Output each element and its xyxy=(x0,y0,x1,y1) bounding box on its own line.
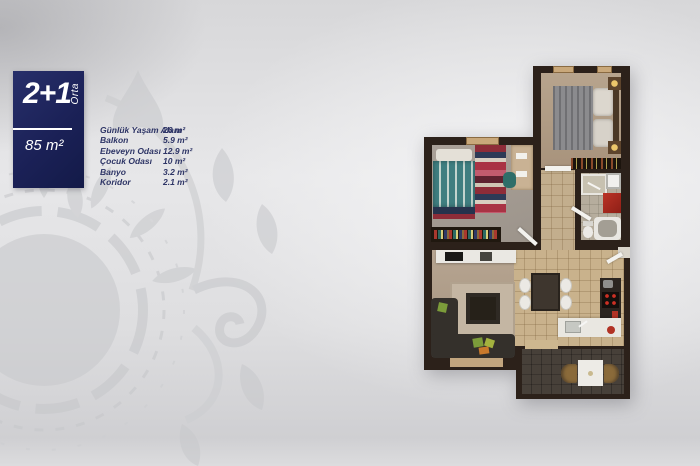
kitchen-counter-top xyxy=(436,250,516,263)
shower-head-arm xyxy=(587,182,600,190)
toilet xyxy=(582,221,594,238)
desk-papers xyxy=(516,153,527,159)
badge-divider xyxy=(13,128,72,130)
floorplan-render xyxy=(423,66,630,403)
room-area: 12.9 m² xyxy=(163,146,192,156)
bathtub xyxy=(594,217,621,240)
bedroom-window xyxy=(597,66,612,73)
child-room-window xyxy=(466,137,499,145)
red-kettle xyxy=(607,326,615,334)
brochure-page: 2+1 Orta 85 m² Günlük Yaşam Alanı 26 m² … xyxy=(0,0,700,466)
room-area-legend: Günlük Yaşam Alanı 26 m² Balkon 5.9 m² E… xyxy=(100,125,230,187)
desk-papers xyxy=(516,171,527,177)
dining-chair xyxy=(560,295,572,310)
dining-chair xyxy=(519,295,531,310)
dining-chair xyxy=(519,278,531,293)
legend-row: Günlük Yaşam Alanı 26 m² xyxy=(100,125,230,135)
legend-row: Koridor 2.1 m² xyxy=(100,177,230,187)
book-spines xyxy=(434,230,498,239)
counter-red-item xyxy=(612,311,618,318)
striped-rug xyxy=(475,145,506,213)
bed-duvet xyxy=(553,86,593,150)
unit-type-label: 2+1 xyxy=(23,77,71,111)
coffee-table-top xyxy=(470,297,496,320)
toilet-bowl xyxy=(583,226,593,238)
shower xyxy=(581,174,607,195)
balcony-door-threshold xyxy=(525,340,558,349)
room-area: 2.1 m² xyxy=(163,177,188,187)
balcony-table xyxy=(578,360,603,386)
room-name: Çocuk Odası xyxy=(100,156,163,166)
room-area: 3.2 m² xyxy=(163,167,188,177)
room-name: Günlük Yaşam Alanı xyxy=(100,125,163,135)
cooktop xyxy=(445,252,463,261)
unit-area-label: 85 m² xyxy=(25,137,63,154)
legend-row: Çocuk Odası 10 m² xyxy=(100,156,230,166)
pot xyxy=(603,280,613,288)
bed-pillow xyxy=(436,149,472,161)
bed-blanket-navy xyxy=(433,207,475,214)
sofa-pillow-orange xyxy=(479,346,490,354)
dining-chair xyxy=(560,278,572,293)
balcony-chair xyxy=(561,364,577,383)
counter-sink xyxy=(480,252,492,261)
dining-table xyxy=(531,273,560,311)
bedroom-dresser xyxy=(571,158,621,169)
unit-position-label: Orta xyxy=(70,83,81,104)
desk-chair xyxy=(503,172,516,188)
bathroom-cabinet-red xyxy=(603,193,621,213)
bedroom-door xyxy=(545,166,571,171)
bathroom-cabinet-white xyxy=(606,173,621,189)
room-name: Ebeveyn Odası xyxy=(100,146,163,156)
bed-pillows xyxy=(593,88,613,116)
single-bed xyxy=(433,147,475,219)
bathtub-basin xyxy=(598,220,617,237)
room-area: 26 m² xyxy=(163,125,185,135)
kitchen-counter-right xyxy=(600,278,621,320)
tv-stand xyxy=(450,358,503,367)
legend-row: Ebeveyn Odası 12.9 m² xyxy=(100,146,230,156)
coffee-table xyxy=(466,293,500,324)
room-name: Banyo xyxy=(100,167,163,177)
room-corridor xyxy=(541,170,575,250)
kitchen-counter-bottom xyxy=(558,318,621,337)
nightstand xyxy=(608,77,621,90)
stove xyxy=(602,292,619,308)
room-area: 5.9 m² xyxy=(163,135,188,145)
unit-badge: 2+1 Orta 85 m² xyxy=(13,71,84,188)
room-area: 10 m² xyxy=(163,156,185,166)
room-name: Koridor xyxy=(100,177,163,187)
bookshelf xyxy=(431,227,501,242)
legend-row: Balkon 5.9 m² xyxy=(100,135,230,145)
bedroom-window xyxy=(553,66,574,73)
room-name: Balkon xyxy=(100,135,163,145)
legend-row: Banyo 3.2 m² xyxy=(100,167,230,177)
bed-duvet-striped xyxy=(433,161,475,207)
sofa-pillow-green xyxy=(437,302,448,313)
nightstand xyxy=(608,141,621,154)
bed-blanket-red xyxy=(433,214,475,219)
balcony-table-center xyxy=(588,371,593,376)
